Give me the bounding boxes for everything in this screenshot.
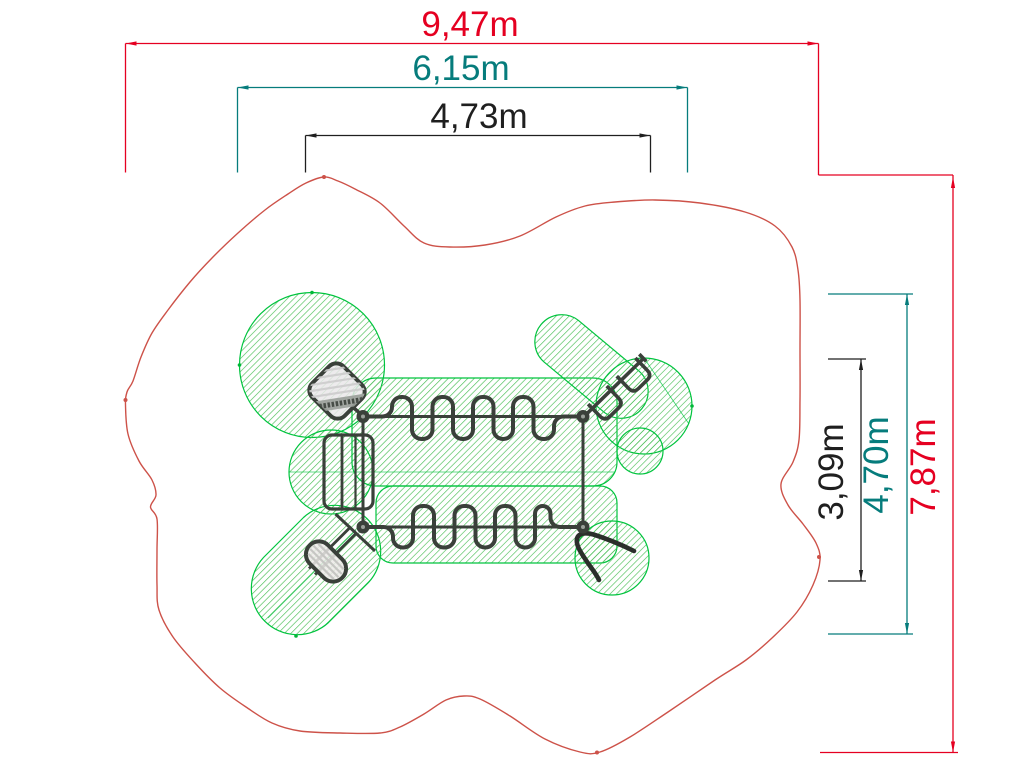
- svg-text:4,73m: 4,73m: [430, 97, 527, 136]
- svg-text:4,70m: 4,70m: [857, 416, 896, 513]
- svg-text:3,09m: 3,09m: [812, 423, 851, 520]
- svg-text:6,15m: 6,15m: [412, 49, 509, 88]
- svg-text:7,87m: 7,87m: [904, 418, 943, 515]
- svg-text:9,47m: 9,47m: [421, 5, 518, 44]
